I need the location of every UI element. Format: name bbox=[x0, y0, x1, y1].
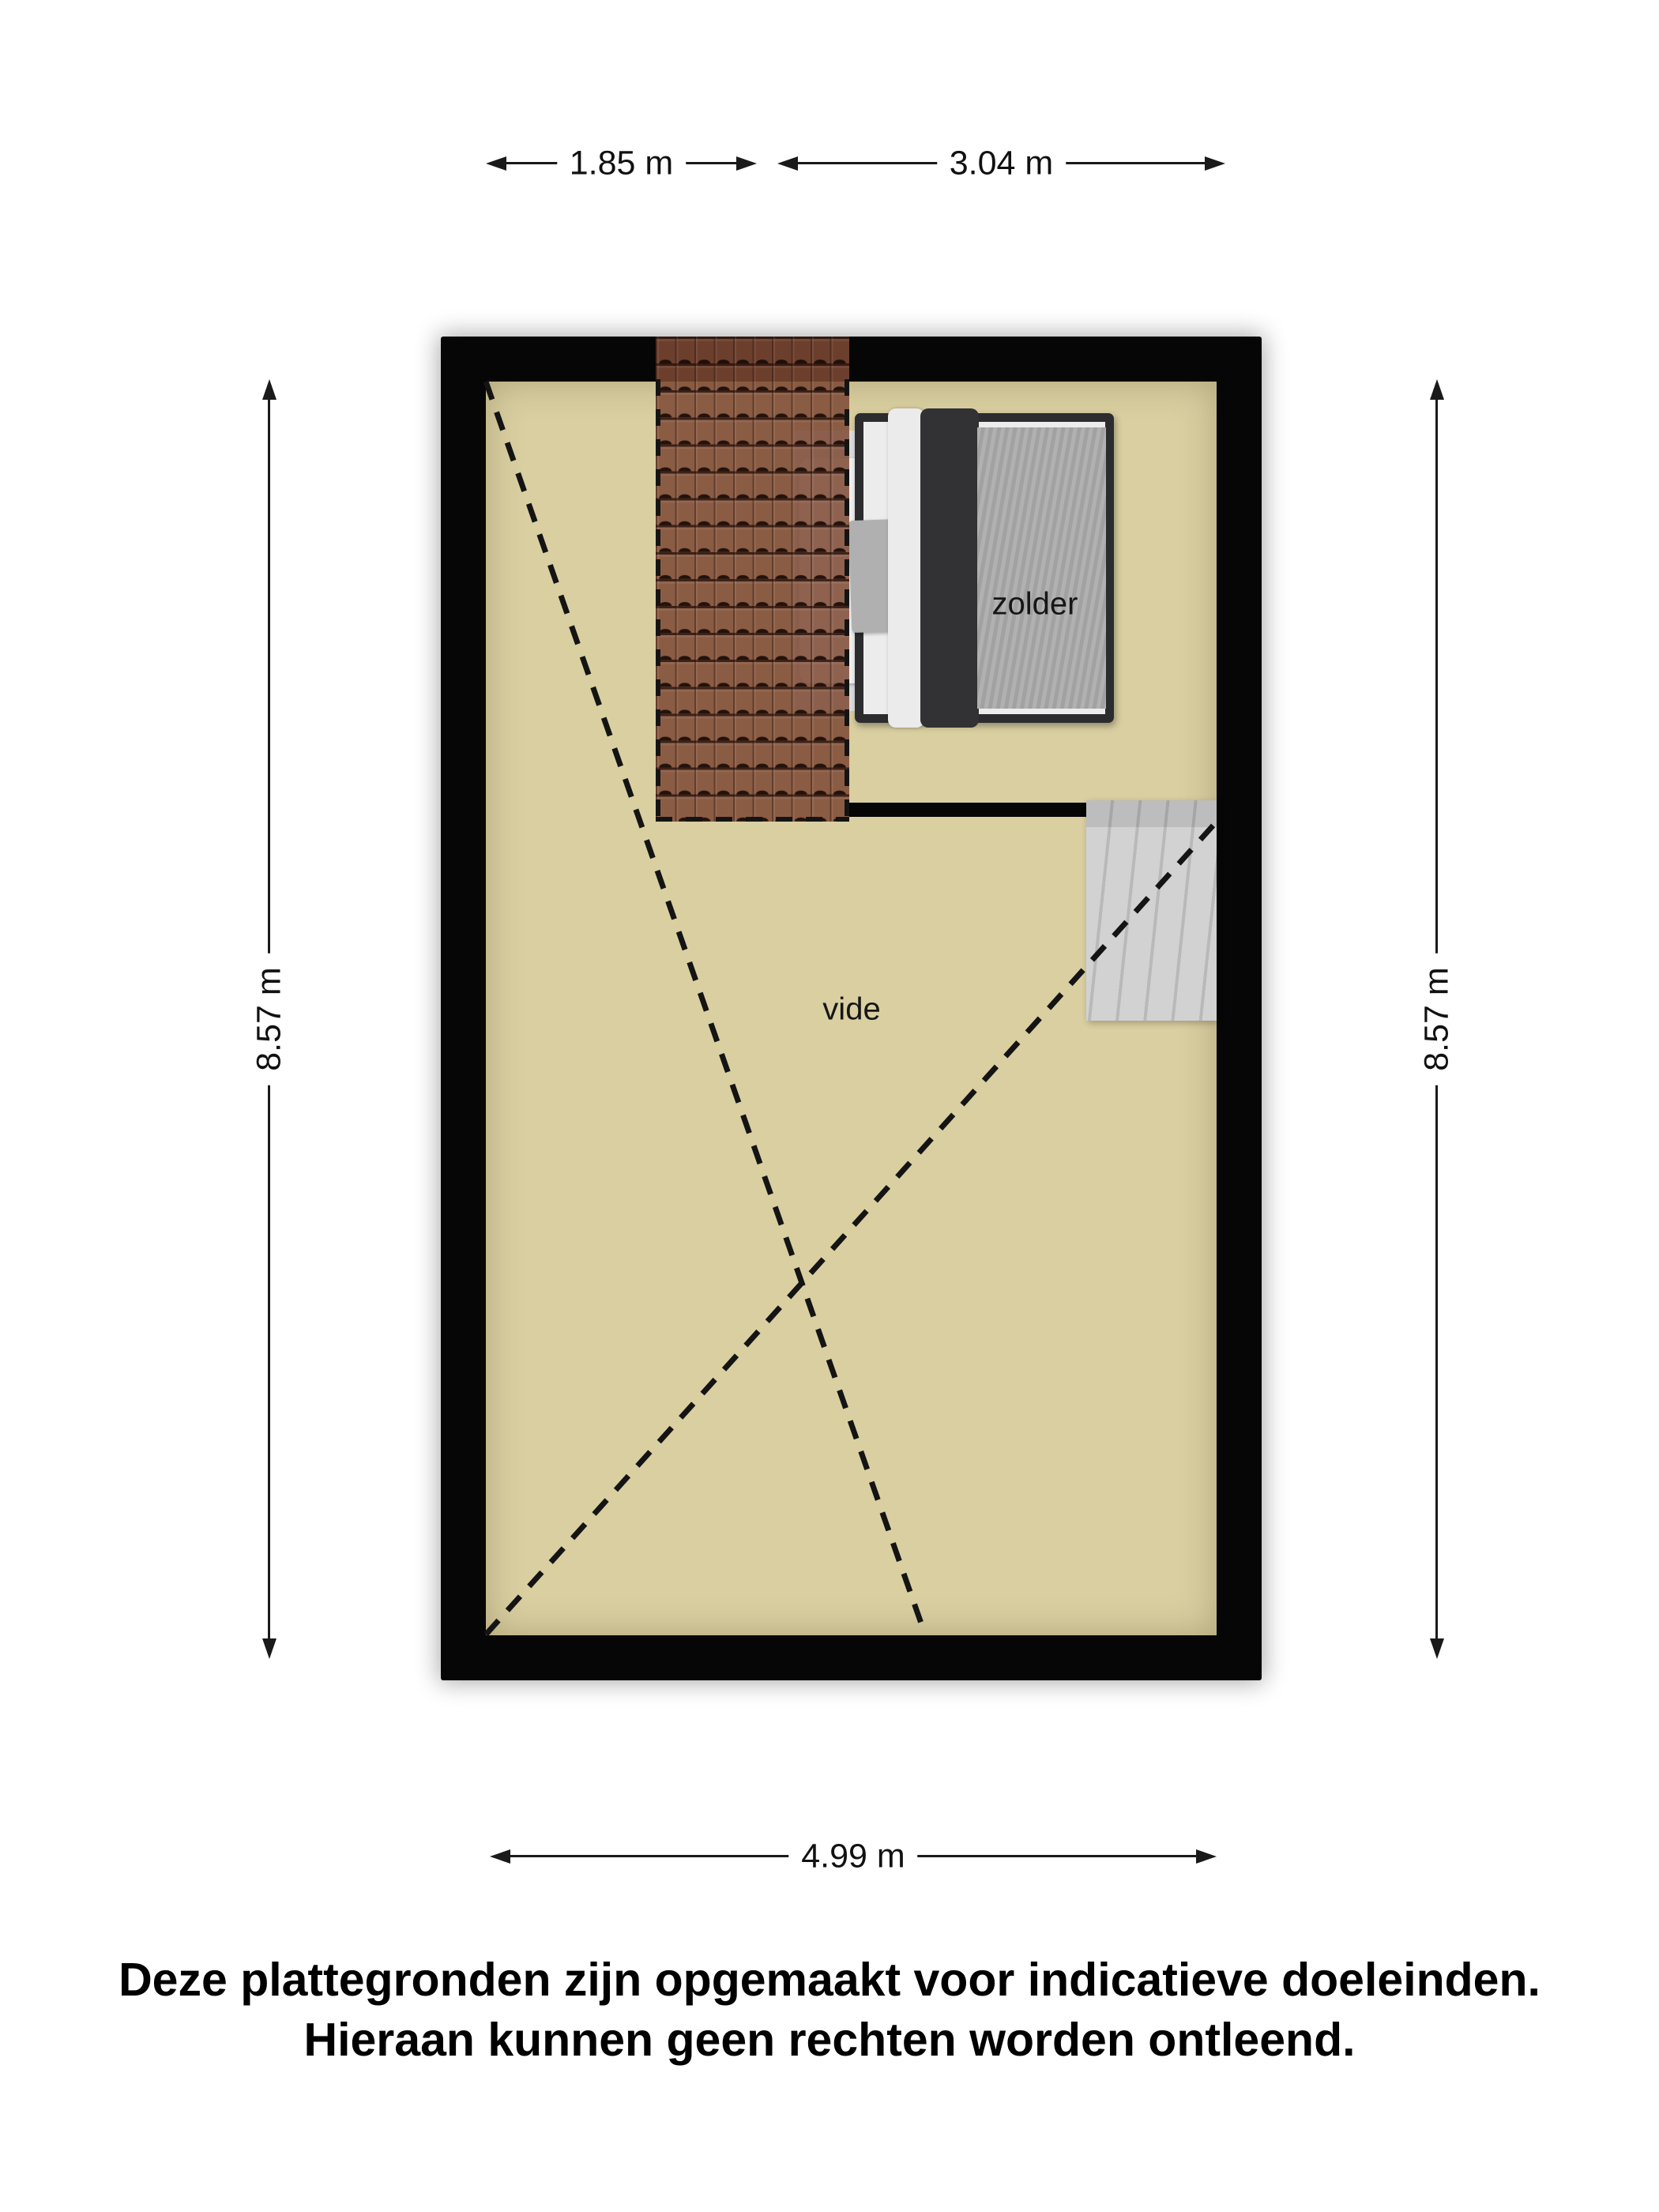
dimension-top-left: 1.85 m bbox=[486, 151, 757, 176]
bed-duvet-edge bbox=[920, 408, 979, 728]
arrowhead-up-icon bbox=[1430, 379, 1444, 400]
arrowhead-down-icon bbox=[262, 1638, 276, 1659]
roof-edge-dashed-left bbox=[656, 379, 660, 822]
dimension-label: 8.57 m bbox=[1413, 953, 1461, 1085]
arrowhead-up-icon bbox=[262, 379, 276, 400]
dimension-top-right: 3.04 m bbox=[777, 151, 1225, 176]
dimension-left: 8.57 m bbox=[257, 379, 282, 1659]
roof-tiles-overlay bbox=[656, 337, 849, 822]
arrowhead-left-icon bbox=[490, 1849, 510, 1864]
arrowhead-left-icon bbox=[777, 156, 798, 171]
room-label-zolder: zolder bbox=[992, 587, 1078, 623]
roof-edge-dashed-right bbox=[845, 379, 849, 822]
bed-sheet-fold bbox=[888, 408, 924, 728]
arrowhead-left-icon bbox=[486, 156, 506, 171]
arrowhead-right-icon bbox=[1205, 156, 1225, 171]
arrowhead-right-icon bbox=[736, 156, 757, 171]
roof-edge-dashed-bottom bbox=[656, 817, 849, 822]
dimension-bottom: 4.99 m bbox=[490, 1844, 1217, 1869]
bed-duvet bbox=[977, 427, 1106, 709]
dimension-label: 4.99 m bbox=[788, 1834, 917, 1879]
dimension-label: 3.04 m bbox=[937, 141, 1066, 186]
disclaimer-line-2: Hieraan kunnen geen rechten worden ontle… bbox=[0, 2010, 1659, 2070]
arrowhead-right-icon bbox=[1196, 1849, 1217, 1864]
disclaimer: Deze plattegronden zijn opgemaakt voor i… bbox=[0, 1950, 1659, 2070]
dimension-label: 8.57 m bbox=[246, 953, 294, 1085]
floorplan-page: 1.85 m 3.04 m 8.57 m 8.57 m bbox=[0, 0, 1659, 2212]
disclaimer-line-1: Deze plattegronden zijn opgemaakt voor i… bbox=[0, 1950, 1659, 2010]
room-label-vide: vide bbox=[822, 992, 880, 1028]
dimension-label: 1.85 m bbox=[557, 141, 686, 186]
arrowhead-down-icon bbox=[1430, 1638, 1444, 1659]
dimension-right: 8.57 m bbox=[1424, 379, 1450, 1659]
